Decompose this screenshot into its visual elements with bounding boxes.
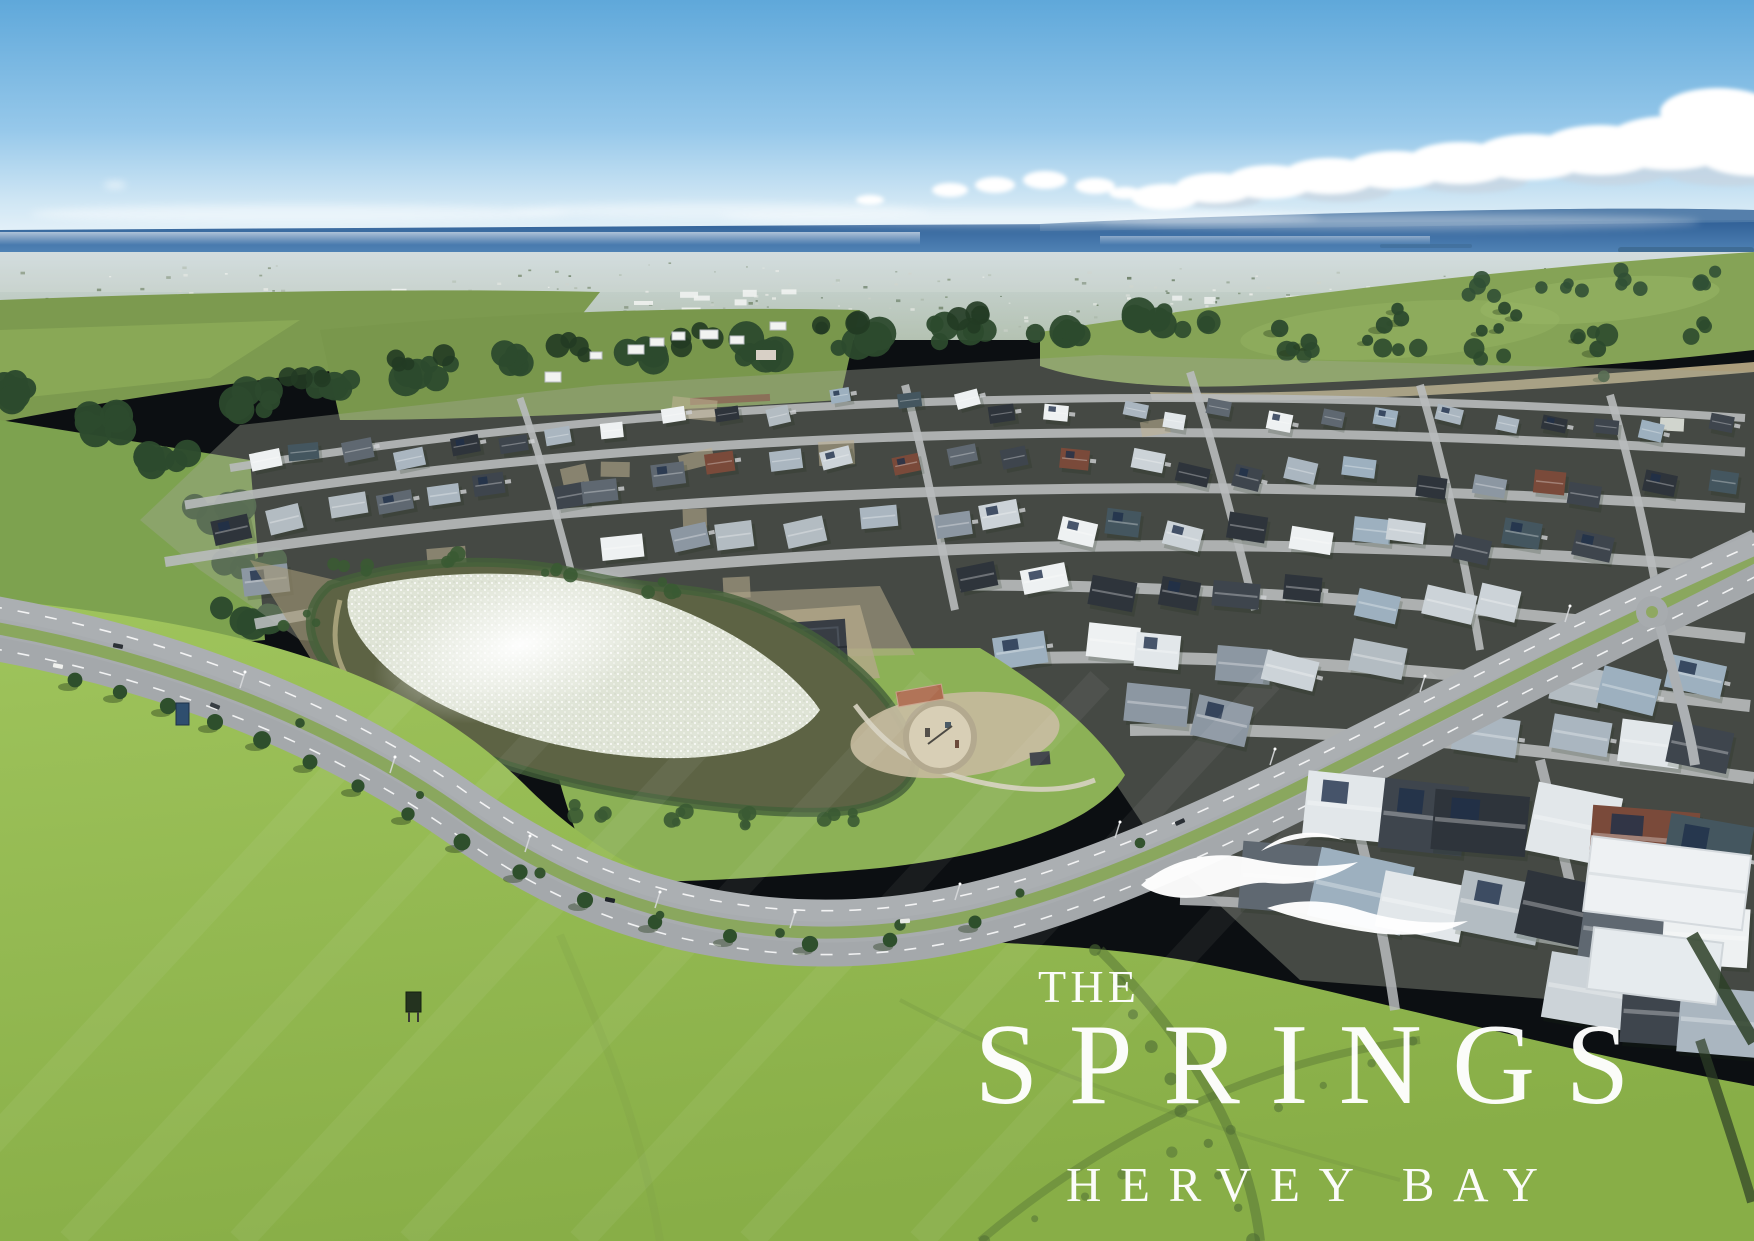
- house: [650, 461, 689, 491]
- house: [1532, 469, 1569, 499]
- house: [1133, 632, 1184, 675]
- house: [1341, 456, 1380, 483]
- house: [1104, 508, 1145, 542]
- house: [1123, 682, 1194, 731]
- house: [860, 504, 902, 533]
- house: [1415, 475, 1451, 504]
- house: [288, 442, 323, 466]
- house: [1566, 482, 1605, 513]
- logo-name: SPRINGS: [975, 1001, 1630, 1128]
- house: [1211, 580, 1268, 615]
- house: [1593, 418, 1623, 439]
- house: [1708, 469, 1742, 498]
- brochure-cover: THE SPRINGS HERVEY BAY: [0, 0, 1754, 1241]
- aerial-photo: THE SPRINGS HERVEY BAY: [0, 0, 1754, 1241]
- house: [1162, 412, 1189, 435]
- house: [581, 477, 626, 507]
- house: [600, 533, 648, 565]
- house: [714, 520, 758, 555]
- house: [769, 448, 807, 476]
- house: [1282, 574, 1329, 607]
- house: [1430, 789, 1533, 862]
